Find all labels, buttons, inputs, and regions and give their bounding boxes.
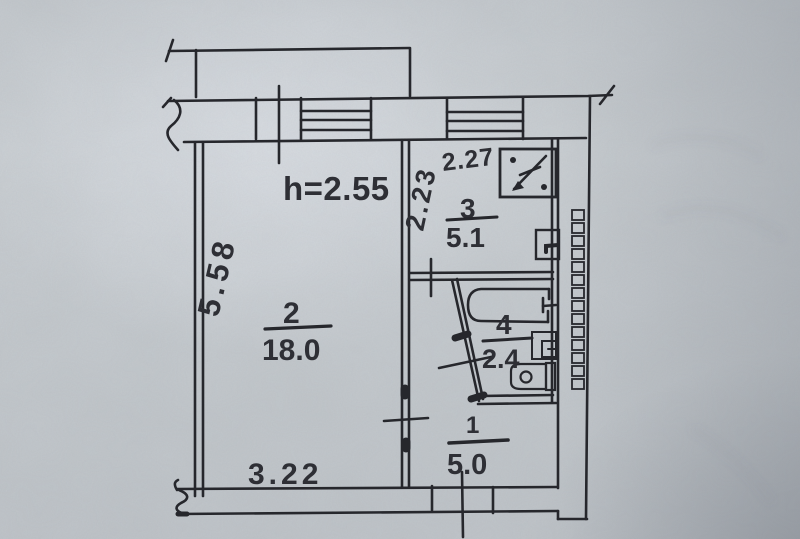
svg-text:2: 2 [283, 297, 300, 330]
svg-text:5.1: 5.1 [446, 222, 485, 253]
svg-text:4: 4 [496, 309, 512, 340]
svg-text:5.58: 5.58 [191, 233, 243, 319]
svg-text:3.22: 3.22 [248, 458, 322, 491]
svg-text:18.0: 18.0 [262, 334, 320, 367]
svg-text:2.23: 2.23 [400, 164, 443, 233]
svg-text:2.4: 2.4 [482, 344, 520, 374]
svg-text:h=2.55: h=2.55 [283, 170, 390, 207]
svg-text:5.0: 5.0 [447, 449, 487, 481]
svg-text:1: 1 [466, 412, 479, 439]
svg-text:2.27: 2.27 [440, 143, 496, 177]
